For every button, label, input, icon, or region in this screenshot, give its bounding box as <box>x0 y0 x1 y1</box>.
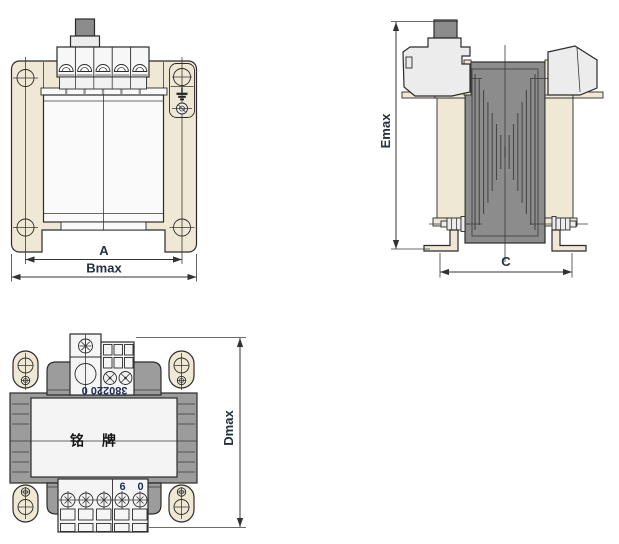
dimension-a: A <box>26 243 183 260</box>
nameplate-label: 铭 牌 <box>70 433 123 449</box>
bracket-side-right <box>548 46 597 95</box>
dimension-c: C <box>440 253 572 278</box>
knob-base <box>71 36 100 47</box>
corner-bracket-top-right <box>169 351 194 390</box>
corner-bracket-bottom-left <box>13 485 38 522</box>
secondary-terminal-label-6: 6 <box>119 481 125 493</box>
primary-terminal-block: 380220 0 <box>70 334 134 396</box>
dim-label-c: C <box>501 254 511 269</box>
dim-label-a: A <box>99 243 109 258</box>
secondary-terminal-label-0: 0 <box>137 481 143 493</box>
terminal-block-side <box>403 38 470 96</box>
coil-side-right <box>545 90 577 226</box>
dimension-bmax: Bmax <box>12 254 197 282</box>
dim-label-dmax: Dmax <box>221 410 236 446</box>
top-view: 铭 牌 <box>10 334 246 532</box>
screw-icon <box>79 339 93 353</box>
corner-bracket-bottom-right <box>169 485 194 522</box>
front-view: A Bmax <box>12 19 197 282</box>
primary-terminal-marking: 380220 0 <box>82 384 128 396</box>
terminal-block-front <box>57 47 149 89</box>
secondary-terminal-block: 6 0 <box>58 479 148 532</box>
mounting-foot-left <box>424 230 458 251</box>
corner-bracket-top-left <box>13 351 38 390</box>
coil-side-left <box>433 90 465 226</box>
knob <box>76 19 95 36</box>
transformer-dimension-drawing: A Bmax <box>0 0 619 544</box>
mounting-foot-right <box>552 230 586 251</box>
drawing-svg: A Bmax <box>0 0 619 544</box>
side-view: Emax C <box>378 20 603 278</box>
knob-side <box>434 20 457 38</box>
dim-label-emax: Emax <box>378 113 393 148</box>
dim-label-bmax: Bmax <box>86 261 122 276</box>
